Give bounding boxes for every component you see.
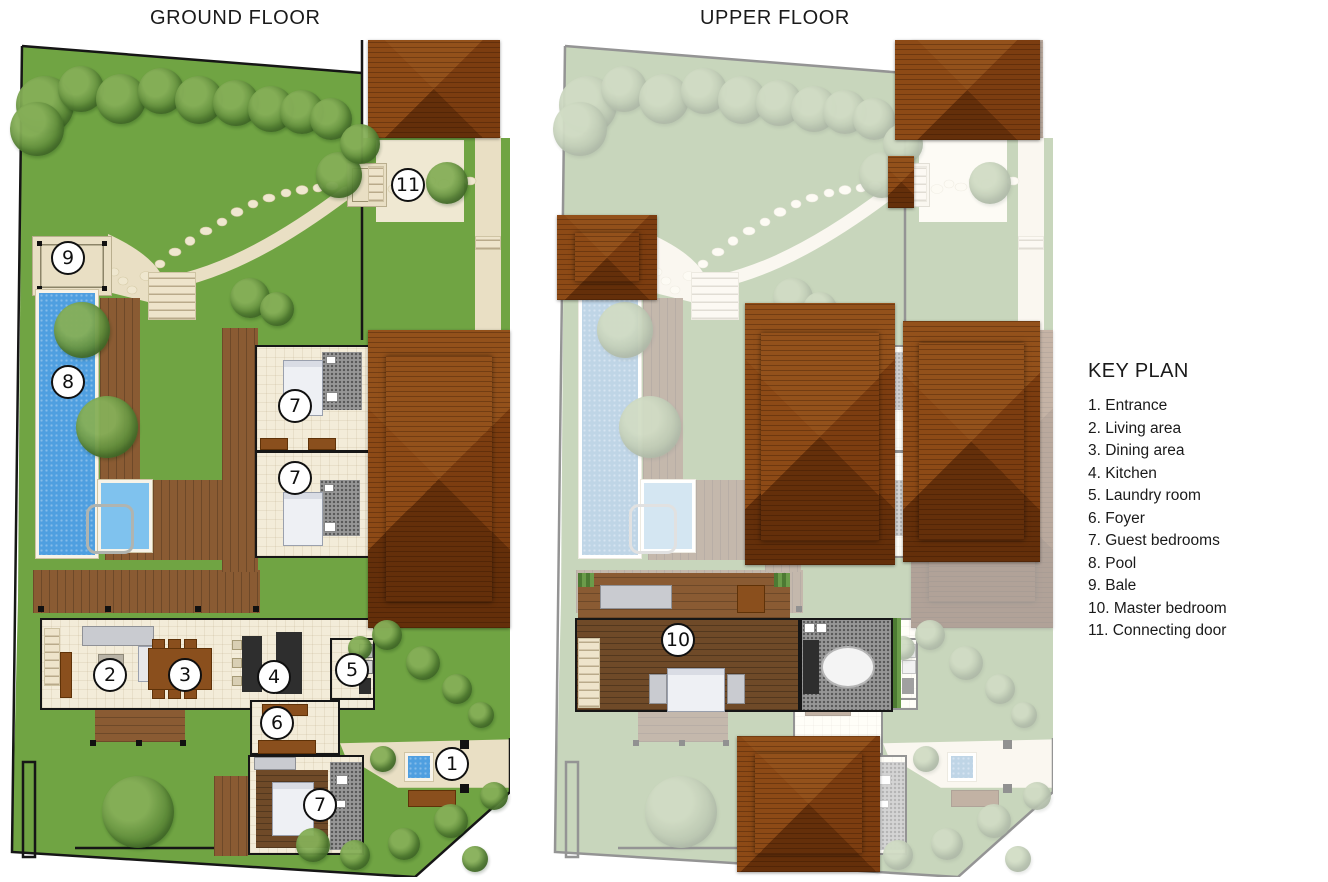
plan-marker-2-living-area: 2 (93, 658, 127, 692)
bar-stool (232, 640, 242, 650)
tree (102, 776, 174, 848)
roof-central (745, 303, 895, 565)
key-plan-item: 6. Foyer (1088, 508, 1324, 531)
gate-roof (888, 156, 914, 208)
floorplan-page: { "header": { "ground_title": "GROUND FL… (0, 0, 1328, 882)
shrub (949, 646, 983, 680)
key-plan-panel: KEY PLAN 1. Entrance 2. Living area 3. D… (1088, 360, 1324, 643)
shrub (296, 828, 330, 862)
toilet (326, 356, 336, 364)
walkway-deck (222, 328, 258, 572)
key-plan-item: 4. Kitchen (1088, 463, 1324, 486)
shrub (462, 846, 488, 872)
spa-seat (86, 504, 134, 554)
gate-post (1003, 740, 1012, 749)
shrub (985, 674, 1015, 704)
guest-bed (283, 492, 323, 546)
key-plan-item: 10. Master bedroom (1088, 598, 1324, 621)
plan-ground: 1198772345617 (10, 40, 510, 877)
tree (619, 396, 681, 458)
bale-post (37, 241, 42, 246)
bath-hedge (893, 618, 901, 708)
driveway-steps (1018, 236, 1044, 250)
shrub (1011, 702, 1037, 728)
planter (578, 573, 594, 587)
bale-post (102, 241, 107, 246)
garden-steps (148, 272, 196, 320)
key-plan-list: 1. Entrance 2. Living area 3. Dining are… (1088, 395, 1324, 643)
shrub (480, 782, 508, 810)
plan-upper: 10 (553, 40, 1053, 877)
roof-ridge-tier (755, 754, 862, 854)
shrub (370, 746, 396, 772)
deck-post (38, 606, 44, 612)
plan-marker-5-laundry-room: 5 (335, 653, 369, 687)
plan-marker-3-dining-area: 3 (168, 658, 202, 692)
master-chair (649, 674, 667, 704)
gate-steps (368, 166, 384, 202)
tree (10, 102, 64, 156)
gate-post (460, 740, 469, 749)
living-sofa (82, 626, 154, 646)
suite-deck (214, 776, 248, 856)
roof-south (737, 736, 880, 872)
key-plan-item: 5. Laundry room (1088, 485, 1324, 508)
upper-floor-title: UPPER FLOOR (700, 7, 850, 30)
plan-marker-6-foyer: 6 (260, 706, 294, 740)
shrub (406, 646, 440, 680)
shrub (913, 746, 939, 772)
bathtub (821, 646, 875, 688)
basin (324, 522, 336, 532)
key-plan-item: 7. Guest bedrooms (1088, 530, 1324, 553)
roof-northeast (895, 40, 1040, 140)
dining-chair (184, 639, 197, 649)
master-deck-table (737, 585, 765, 613)
key-plan-item: 9. Bale (1088, 575, 1324, 598)
deck-post (105, 606, 111, 612)
basin (879, 775, 891, 785)
driveway-steps (475, 236, 501, 250)
porch-post (723, 740, 729, 746)
spa-seat (629, 504, 677, 554)
porch-post (679, 740, 685, 746)
porch-deck (638, 710, 728, 742)
plan-marker-9-bale: 9 (51, 241, 85, 275)
roof-east-wing (368, 330, 510, 628)
desk (308, 438, 336, 450)
deck-post (253, 606, 259, 612)
suite-sofa (254, 757, 296, 770)
porch-deck (95, 710, 185, 742)
guest-room-divider-wall (257, 450, 368, 453)
foyer-console (258, 740, 316, 754)
basin (326, 392, 338, 402)
shrub (340, 840, 370, 870)
plan-marker-7-guest-bedroom: 7 (303, 788, 337, 822)
porch-post (180, 740, 186, 746)
roof-ridge-tier (761, 333, 879, 541)
toilet (336, 800, 346, 808)
master-deck-sofa (600, 585, 672, 609)
plan-marker-7-guest-bedroom: 7 (278, 461, 312, 495)
basin (816, 623, 827, 633)
shrub (372, 620, 402, 650)
plan-marker-7-guest-bedroom: 7 (278, 389, 312, 423)
tree (597, 302, 653, 358)
gate-post (1003, 784, 1012, 793)
shrub (915, 620, 945, 650)
tree (553, 102, 607, 156)
roof-northeast (368, 40, 500, 138)
key-plan-title: KEY PLAN (1088, 360, 1324, 383)
shrub (442, 674, 472, 704)
porch-post (90, 740, 96, 746)
shrub (977, 804, 1011, 838)
bar-stool (232, 658, 242, 668)
porch-post (136, 740, 142, 746)
shrub (468, 702, 494, 728)
dining-chair (152, 639, 165, 649)
shrub (883, 840, 913, 870)
dryer (902, 660, 916, 674)
master-bed (667, 668, 725, 712)
plan-marker-4-kitchen: 4 (257, 660, 291, 694)
pavilion-stairs (44, 628, 60, 686)
plan-marker-8-pool: 8 (51, 365, 85, 399)
key-plan-item: 8. Pool (1088, 553, 1324, 576)
master-stairs (578, 638, 600, 708)
gate-post (460, 784, 469, 793)
dining-chair (152, 689, 165, 699)
basin (804, 623, 815, 633)
bale-roof (557, 215, 657, 300)
toilet (879, 800, 889, 808)
planter (774, 573, 790, 587)
entrance-water-feature (405, 753, 433, 781)
porch-post (633, 740, 639, 746)
bar-stool (232, 676, 242, 686)
key-plan-item: 3. Dining area (1088, 440, 1324, 463)
tree (426, 162, 468, 204)
garden-steps (691, 272, 739, 320)
tree (54, 302, 110, 358)
tree (76, 396, 138, 458)
toilet (324, 484, 334, 492)
shrub (388, 828, 420, 860)
dining-chair (168, 639, 181, 649)
tree (260, 292, 294, 326)
roof-ridge-tier (386, 356, 492, 602)
key-plan-item: 11. Connecting door (1088, 620, 1324, 643)
ground-floor-title: GROUND FLOOR (150, 7, 321, 30)
key-plan-item: 1. Entrance (1088, 395, 1324, 418)
tree (340, 124, 380, 164)
shrub (434, 804, 468, 838)
tree (645, 776, 717, 848)
terrace-deck-band (33, 570, 260, 613)
roof-ridge-tier (919, 343, 1024, 540)
deck-post (796, 606, 802, 612)
bale-post (102, 286, 107, 291)
roof-east-wing (903, 321, 1040, 562)
master-chair (727, 674, 745, 704)
shrub (1005, 846, 1031, 872)
entrance-water-feature (948, 753, 976, 781)
roof-ridge-tier (575, 233, 639, 282)
sideboard (60, 652, 72, 698)
plan-marker-10-master-bedroom: 10 (661, 623, 695, 657)
bath-vanity (803, 640, 819, 694)
tree (969, 162, 1011, 204)
shrub (1023, 782, 1051, 810)
desk (260, 438, 288, 450)
laundry-counter (902, 678, 914, 694)
key-plan-item: 2. Living area (1088, 418, 1324, 441)
basin (336, 775, 348, 785)
plan-marker-1-entrance: 1 (435, 747, 469, 781)
shrub (931, 828, 963, 860)
deck-post (195, 606, 201, 612)
plan-marker-11-connecting-door: 11 (391, 168, 425, 202)
